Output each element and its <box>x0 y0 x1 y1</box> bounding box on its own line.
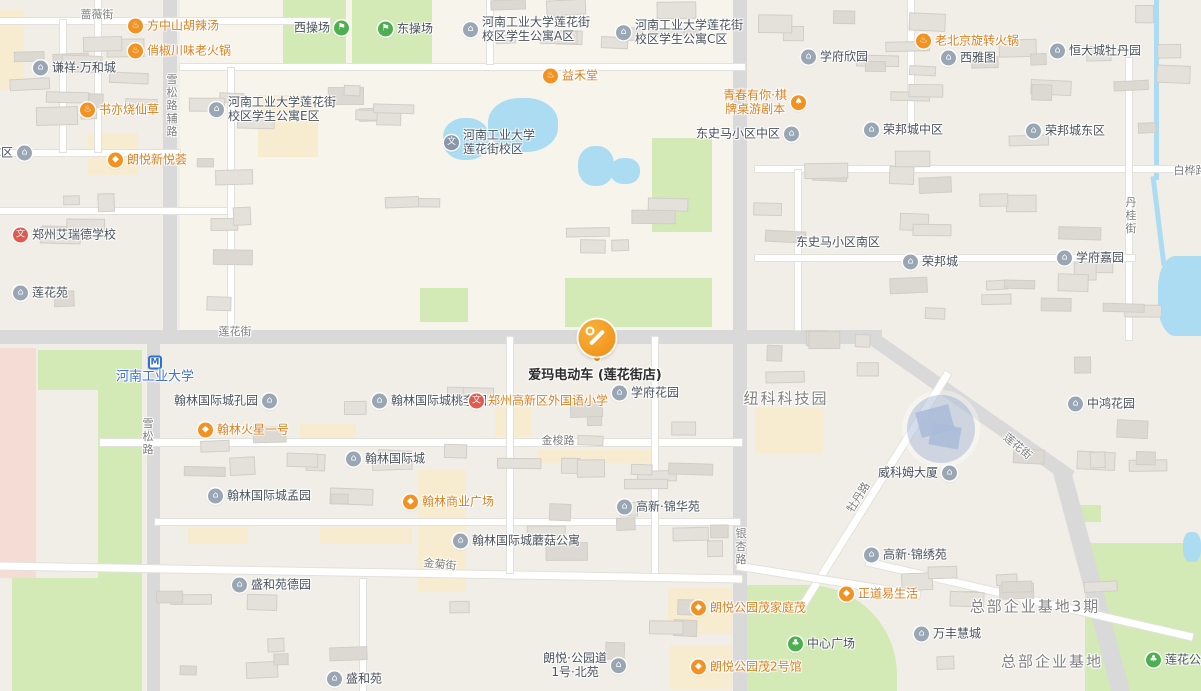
poi-shengheyuan-deyuan[interactable]: ⌂盛和苑德园 <box>232 578 311 593</box>
poi-label: 学府欣园 <box>820 50 868 64</box>
poi-rongbangcheng-zhongqu[interactable]: ⌂荣邦城中区 <box>864 123 943 138</box>
poi-gaoxin-jinxiuyuan[interactable]: ⌂高新·锦绣苑 <box>864 548 947 563</box>
res-icon: ⌂ <box>453 534 468 549</box>
ent-icon: ♠ <box>791 96 806 111</box>
res-icon: ⌂ <box>611 659 626 674</box>
poi-haut-lianhua-campus[interactable]: 文河南工业大学莲花街校区 <box>444 129 535 157</box>
poi-label: 书亦烧仙草 <box>99 103 159 117</box>
poi-label: 翰林商业广场 <box>422 495 494 509</box>
shop-icon: ◆ <box>691 601 706 616</box>
poi-label: 高新·锦绣苑 <box>883 548 947 562</box>
poi-label: 郑州高新区外国语小学 <box>488 394 608 408</box>
poi-label-line: 校区学生公寓C区 <box>635 33 743 47</box>
res-icon: ⌂ <box>801 50 816 65</box>
poi-label: 翰林国际城 <box>365 452 425 466</box>
school-icon: 文 <box>13 228 28 243</box>
poi-label-line: 牌桌游剧本 <box>723 103 787 117</box>
poi-haut-dorm-e[interactable]: ⌂河南工业大学莲花街校区学生公寓E区 <box>209 96 336 124</box>
tool-icon <box>586 327 595 336</box>
poi-hanlin-kongyuan[interactable]: 翰林国际城孔园⌂ <box>174 394 277 409</box>
poi-label: 青春有你·棋牌桌游剧本 <box>723 89 787 117</box>
poi-label: 河南工业大学莲花街校区学生公寓A区 <box>482 16 590 44</box>
poi-qingchun-boardgame[interactable]: 青春有你·棋牌桌游剧本♠ <box>723 89 806 117</box>
res-icon: ⌂ <box>914 627 929 642</box>
poi-label-line: 河南工业大学莲花街 <box>482 16 590 30</box>
poi-lianhuayuan[interactable]: ⌂莲花苑 <box>13 286 68 301</box>
poi-label: 中心广场 <box>807 637 855 651</box>
res-icon: ⌂ <box>232 578 247 593</box>
res-icon: ⌂ <box>13 286 28 301</box>
poi-label: 威科姆大厦 <box>878 466 938 480</box>
poi-hanlin-mogu-apt[interactable]: ⌂翰林国际城蘑菇公寓 <box>453 534 580 549</box>
poi-langyue-jiating-mall[interactable]: ◆朗悦公园茂家庭茂 <box>691 601 806 616</box>
res-icon: ⌂ <box>262 394 277 409</box>
res-icon: ⌂ <box>1050 44 1065 59</box>
poi-label-line: 青春有你·棋 <box>723 89 787 103</box>
street-label-qiangweijie: 蔷薇街 <box>81 6 114 22</box>
poi-dongshima-zhongqu[interactable]: 东史马小区中区⌂ <box>696 127 799 142</box>
res-icon: ⌂ <box>372 394 387 409</box>
poi-haut-metro-station[interactable]: M河南工业大学 <box>116 356 194 386</box>
poi-marker-aima-store[interactable] <box>579 320 616 357</box>
poi-weikemu-tower[interactable]: 威科姆大厦⌂ <box>878 466 957 481</box>
park-icon: ♣ <box>788 637 803 652</box>
poi-hanlin-mengyuan[interactable]: ⌂翰林国际城孟园 <box>208 489 311 504</box>
poi-label-line: 校区学生公寓E区 <box>228 110 336 124</box>
poi-label: C区 <box>0 146 13 160</box>
poi-label: 高新·锦华苑 <box>636 500 700 514</box>
poi-rongbangcheng-dongqu[interactable]: ⌂荣邦城东区 <box>1026 124 1105 139</box>
poi-fangzhongshan[interactable]: ♨方中山胡辣汤 <box>128 19 219 34</box>
poi-label: 学府嘉园 <box>1076 251 1124 265</box>
poi-label: 盛和苑 <box>346 672 382 686</box>
poi-label: 益禾堂 <box>562 69 598 83</box>
poi-lianhua-gongyuan[interactable]: ♣莲花公园 <box>1146 653 1201 668</box>
poi-label: 荣邦城中区 <box>883 123 943 137</box>
map-canvas[interactable]: 蔷薇街雪松路辅路雪松路莲花街金梭路金菊街莲花街牡丹路白桦路丹桂街银杏路纽科科技园… <box>0 0 1201 691</box>
res-icon: ⌂ <box>17 146 32 161</box>
poi-label: 翰林国际城孟园 <box>227 489 311 503</box>
res-icon: ⌂ <box>864 548 879 563</box>
poi-label-line: 朗悦·公园道 <box>543 652 607 666</box>
poi-label: 河南工业大学莲花街校区学生公寓C区 <box>635 19 743 47</box>
street-label-xuesonglu-north: 雪松路辅路 <box>163 74 179 139</box>
poi-dongshima-nanqu[interactable]: 东史马小区南区 <box>796 236 880 250</box>
poi-label: 西操场 <box>294 21 330 35</box>
marker-label: 爱玛电动车 (莲花街店) <box>528 364 661 383</box>
poi-label: 河南工业大学莲花街校区 <box>463 129 535 157</box>
school-icon: 文 <box>469 394 484 409</box>
street-label-lianhuajie-east: 莲花街 <box>1000 429 1036 462</box>
poi-label: 恒大城牡丹园 <box>1069 44 1141 58</box>
res-icon: ⌂ <box>941 51 956 66</box>
poi-hengdacheng-mudanyuan[interactable]: ⌂恒大城牡丹园 <box>1050 44 1141 59</box>
res-icon: ⌂ <box>612 386 627 401</box>
poi-langyue-gongyuandao[interactable]: 朗悦·公园道1号·北苑⌂ <box>543 652 626 680</box>
district-label-niuke-tech-park: 纽科科技园 <box>743 388 828 409</box>
poi-laobeijing-hotpot[interactable]: ♨老北京旋转火锅 <box>916 34 1019 49</box>
res-icon: ⌂ <box>327 672 342 687</box>
res-icon: ⌂ <box>346 452 361 467</box>
poi-hanlin-huoxing[interactable]: ◆翰林火星一号 <box>198 423 289 438</box>
res-icon: ⌂ <box>1057 251 1072 266</box>
district-label-hq-base: 总部企业基地 <box>1001 651 1103 672</box>
poi-label-line: 河南工业大学莲花街 <box>228 96 336 110</box>
poi-label: 老北京旋转火锅 <box>935 34 1019 48</box>
shop-icon: ◆ <box>403 495 418 510</box>
street-label-lianhuajie-west: 莲花街 <box>219 323 252 339</box>
poi-label: 谦祥·万和城 <box>52 61 116 75</box>
poi-west-playground[interactable]: 西操场⚑ <box>294 21 349 36</box>
poi-label: 学府花园 <box>631 386 679 400</box>
poi-label: 正道易生活 <box>858 587 918 601</box>
poi-label-line: 1号·北苑 <box>543 666 607 680</box>
sport-icon: ⚑ <box>334 21 349 36</box>
poi-label: 东操场 <box>397 22 433 36</box>
poi-label: 西雅图 <box>960 51 996 65</box>
poi-label: 盛和苑德园 <box>251 578 311 592</box>
poi-label: 东史马小区中区 <box>696 127 780 141</box>
res-icon: ⌂ <box>463 23 478 38</box>
poi-label: 河南工业大学 <box>116 371 194 386</box>
poi-label: 荣邦城 <box>922 255 958 269</box>
poi-xuefu-jiayuan[interactable]: ⌂学府嘉园 <box>1057 251 1124 266</box>
poi-label: 河南工业大学莲花街校区学生公寓E区 <box>228 96 336 124</box>
poi-label: 东史马小区南区 <box>796 236 880 250</box>
street-label-jinsuolu: 金梭路 <box>542 432 575 448</box>
poi-gaoxin-jinhuayuan[interactable]: ⌂高新·锦华苑 <box>617 500 700 515</box>
poi-xiyatu[interactable]: ⌂西雅图 <box>941 51 996 66</box>
poi-qiaojiao-hotpot[interactable]: ♨俏椒川味老火锅 <box>128 44 231 59</box>
poi-label: 朗悦公园茂家庭茂 <box>710 601 806 615</box>
poi-label-line: 河南工业大学 <box>463 129 535 143</box>
poi-label: 中鸿花园 <box>1087 397 1135 411</box>
poi-zhonghong-huayuan[interactable]: ⌂中鸿花园 <box>1068 397 1135 412</box>
metro-icon: M <box>148 356 162 370</box>
poi-label-line: 校区学生公寓A区 <box>482 30 590 44</box>
poi-wanfeng-huicheng[interactable]: ⌂万丰慧城 <box>914 627 981 642</box>
shop-icon: ◆ <box>108 153 123 168</box>
poi-label: 翰林火星一号 <box>217 423 289 437</box>
poi-zhongxin-guangchang[interactable]: ♣中心广场 <box>788 637 855 652</box>
poi-label: 万丰慧城 <box>933 627 981 641</box>
poi-east-playground[interactable]: ⚑东操场 <box>378 22 433 37</box>
food-icon: ♨ <box>916 34 931 49</box>
street-label-mudanlu: 牡丹路 <box>842 479 873 515</box>
street-label-jinjujie: 金菊街 <box>423 554 457 573</box>
poi-xuefu-xinyuan[interactable]: ⌂学府欣园 <box>801 50 868 65</box>
res-icon: ⌂ <box>1068 397 1083 412</box>
poi-xuefu-huayuan[interactable]: ⌂学府花园 <box>612 386 679 401</box>
res-icon: ⌂ <box>209 103 224 118</box>
poi-label: 莲花苑 <box>32 286 68 300</box>
shop-icon: ◆ <box>839 587 854 602</box>
poi-hanlin-shangye[interactable]: ◆翰林商业广场 <box>403 495 494 510</box>
poi-shuyi-shaoxiancao[interactable]: ♨书亦烧仙草 <box>80 103 159 118</box>
poi-langyue-mall-2[interactable]: ◆朗悦公园茂2号馆 <box>691 660 802 675</box>
res-icon: ⌂ <box>33 61 48 76</box>
poi-label: 朗悦·公园道1号·北苑 <box>543 652 607 680</box>
food-icon: ♨ <box>128 44 143 59</box>
res-icon: ⌂ <box>617 500 632 515</box>
drink-icon: ♨ <box>543 69 558 84</box>
poi-label: 莲花公园 <box>1165 653 1201 667</box>
poi-airuide-school[interactable]: 文郑州艾瑞德学校 <box>13 228 116 243</box>
drink-icon: ♨ <box>80 103 95 118</box>
poi-haut-dorm-a[interactable]: ⌂河南工业大学莲花街校区学生公寓A区 <box>463 16 590 44</box>
street-label-baihualu: 白桦路 <box>1174 162 1201 178</box>
poi-label: 俏椒川味老火锅 <box>147 44 231 58</box>
poi-label: 翰林国际城孔园 <box>174 394 258 408</box>
poi-zhengdao-life[interactable]: ◆正道易生活 <box>839 587 918 602</box>
res-icon: ⌂ <box>784 127 799 142</box>
edu-icon: 文 <box>444 136 459 151</box>
poi-rongbangcheng[interactable]: ⌂荣邦城 <box>903 255 958 270</box>
poi-langyue-xinyuehui[interactable]: ◆朗悦新悦荟 <box>108 153 187 168</box>
street-label-yinxinglu: 银杏路 <box>732 528 748 567</box>
street-label-xuesonglu-south: 雪松路 <box>139 418 155 457</box>
sport-icon: ⚑ <box>378 22 393 37</box>
poi-qianxiang-wanhecheng[interactable]: ⌂谦祥·万和城 <box>33 61 116 76</box>
poi-haut-dorm-c[interactable]: ⌂河南工业大学莲花街校区学生公寓C区 <box>616 19 743 47</box>
street-label-danguijie: 丹桂街 <box>1122 197 1138 236</box>
poi-label: 朗悦新悦荟 <box>127 153 187 167</box>
food-icon: ♨ <box>128 19 143 34</box>
res-icon: ⌂ <box>616 26 631 41</box>
res-icon: ⌂ <box>208 489 223 504</box>
poi-shengheyuan[interactable]: ⌂盛和苑 <box>327 672 382 687</box>
poi-label: 朗悦公园茂2号馆 <box>710 660 802 674</box>
poi-waiguoyu-primary[interactable]: 文郑州高新区外国语小学 <box>469 394 608 409</box>
res-icon: ⌂ <box>1026 124 1041 139</box>
poi-label: 方中山胡辣汤 <box>147 19 219 33</box>
poi-label: 翰林国际城蘑菇公寓 <box>472 534 580 548</box>
shop-icon: ◆ <box>691 660 706 675</box>
poi-hanlin-intl-city[interactable]: ⌂翰林国际城 <box>346 452 425 467</box>
district-label-hq-base-phase3: 总部企业基地3期 <box>970 596 1101 617</box>
labels-layer: 蔷薇街雪松路辅路雪松路莲花街金梭路金菊街莲花街牡丹路白桦路丹桂街银杏路纽科科技园… <box>0 0 1201 691</box>
shop-icon: ◆ <box>198 423 213 438</box>
poi-label: 荣邦城东区 <box>1045 124 1105 138</box>
poi-label-line: 莲花街校区 <box>463 143 535 157</box>
park-icon: ♣ <box>1146 653 1161 668</box>
poi-label-line: 河南工业大学莲花街 <box>635 19 743 33</box>
res-icon: ⌂ <box>903 255 918 270</box>
office-icon: ⌂ <box>942 466 957 481</box>
poi-c-block[interactable]: C区⌂ <box>0 146 32 161</box>
poi-yihetang[interactable]: ♨益禾堂 <box>543 69 598 84</box>
res-icon: ⌂ <box>864 123 879 138</box>
poi-label: 郑州艾瑞德学校 <box>32 228 116 242</box>
